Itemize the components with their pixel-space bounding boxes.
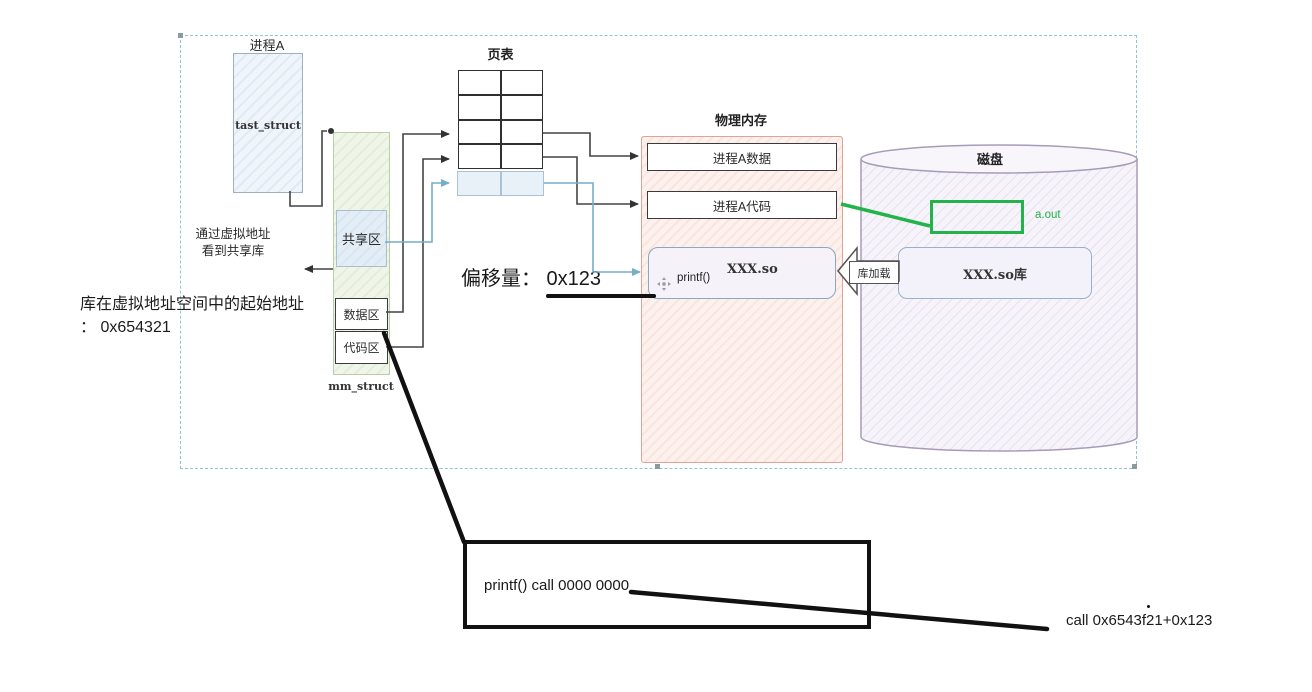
page-table-cell — [501, 95, 544, 120]
disk-cylinder — [860, 143, 1138, 455]
page-table-cell — [458, 144, 501, 169]
page-table-mapped-cell — [457, 171, 501, 196]
diagram-canvas: 进程A tast_struct 共享区 数据区 代码区 mm_struct 页表… — [0, 0, 1312, 692]
aout-label: a.out — [1035, 209, 1061, 221]
offset-note: 偏移量： 0x123 — [461, 262, 601, 291]
selection-handle-top-left[interactable] — [178, 33, 183, 38]
code-region-box: 代码区 — [335, 331, 388, 364]
mm-struct-label: mm_struct — [325, 379, 397, 393]
page-table-cell — [501, 144, 544, 169]
printf-call-annotation-box: printf() call 0000 0000 — [463, 540, 871, 629]
lib-base-address-note-line1: 库在虚拟地址空间中的起始地址 — [80, 290, 304, 314]
proc-a-code-row: 进程A代码 — [647, 191, 837, 219]
selection-handle-bottom-right[interactable] — [1132, 464, 1137, 469]
page-table-cell — [458, 95, 501, 120]
process-a-label: 进程A — [233, 36, 301, 52]
move-icon — [657, 277, 671, 291]
proc-a-data-row: 进程A数据 — [647, 143, 837, 171]
physical-memory-box — [641, 136, 843, 463]
page-table-cell — [501, 70, 544, 95]
mapped-so-box: printf() XXX.so — [648, 247, 836, 299]
page-table-cell — [501, 120, 544, 145]
page-table-mapped-row — [457, 171, 544, 196]
aout-highlight-rect — [930, 200, 1024, 234]
stray-dot — [1147, 605, 1150, 608]
so-name-label: XXX.so — [727, 262, 778, 277]
virtual-address-note-line2: 看到共享库 — [185, 243, 281, 260]
task-struct-label: tast_struct — [234, 117, 302, 133]
disk-so-lib-box: XXX.so库 — [898, 247, 1092, 299]
task-struct-box: tast_struct — [233, 53, 303, 193]
printf-call-note: printf() call 0000 0000 — [484, 577, 629, 594]
page-table-title: 页表 — [458, 45, 543, 62]
disk-title: 磁盘 — [920, 150, 1060, 166]
virtual-address-note-line1: 通过虚拟地址 — [185, 226, 281, 243]
resolved-call-note: call 0x6543f21+0x123 — [1066, 612, 1212, 629]
lib-base-address-note-line2: ： 0x654321 — [80, 313, 171, 337]
data-region-box: 数据区 — [335, 298, 388, 330]
page-table-cell — [458, 70, 501, 95]
page-table-mapped-cell — [501, 171, 545, 196]
library-load-label: 库加载 — [849, 261, 899, 284]
selection-handle-bottom-center[interactable] — [655, 464, 660, 469]
virtual-address-note: 通过虚拟地址 看到共享库 — [185, 226, 281, 260]
shared-region-box: 共享区 — [336, 210, 387, 267]
page-table-cell — [458, 120, 501, 145]
printf-label: printf() — [677, 272, 710, 284]
physical-memory-title: 物理内存 — [641, 110, 841, 128]
page-table-grid — [458, 70, 543, 169]
